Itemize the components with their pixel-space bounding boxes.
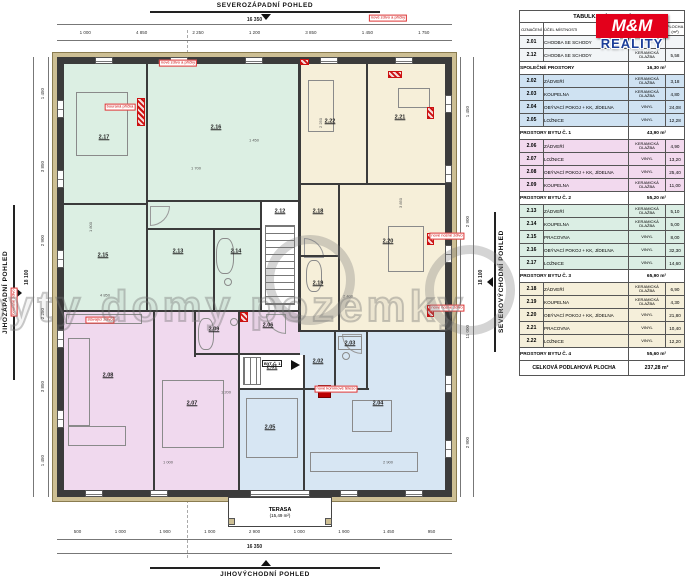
room-label: 2.16 (211, 125, 222, 131)
dimension-label: 2 400 (343, 294, 353, 299)
cell-area: 4,30 (666, 296, 685, 309)
dim-line (48, 57, 49, 497)
table-row: 2.06ZÁDVEŘÍKERAMICKÁ DLAŽBA4,90 (520, 140, 685, 153)
dimension-label: 2 900 (249, 529, 260, 537)
apartment1-entry-arrow (291, 360, 300, 370)
dimension-label: 1 450 (465, 106, 470, 117)
window-symbol (395, 57, 413, 64)
section-label: PROSTORY BYTU Č. 1 (520, 127, 629, 140)
furniture-outline (198, 318, 214, 350)
dimension-label: 2 250 (192, 30, 203, 38)
table-section-row: PROSTORY BYTU Č. 255,20 m² (520, 192, 685, 205)
dim-line (57, 553, 452, 554)
dimension-label: 1 000 (163, 460, 173, 465)
view-label-top: SEVEROZÁPADNÍ POHLED (0, 2, 530, 9)
furniture-outline (68, 426, 126, 446)
room-label: 2.22 (325, 119, 336, 125)
terrace-area: (15,49 m²) (270, 513, 291, 518)
furniture-outline (68, 338, 90, 426)
room-label: 2.02 (313, 359, 324, 365)
dimension-label: 1 450 (383, 529, 394, 537)
wall-segment (64, 203, 146, 205)
wall-segment (146, 64, 148, 312)
red-annotation: nové nosné zdivo (429, 233, 464, 240)
window-symbol (245, 57, 263, 64)
cell-area: 32,30 (666, 244, 685, 257)
cell-id: 2.14 (520, 218, 544, 231)
table-row: 2.16OBÝVACÍ POKOJ + KK, JÍDELNAVINYL32,3… (520, 244, 685, 257)
furniture-outline (310, 452, 418, 472)
dim-right-segments: 1 4502 90011 0002 900 (463, 57, 472, 497)
mm-reality-logo: M&M REALITY (593, 14, 671, 51)
dimension-label: 1 700 (191, 166, 201, 171)
dimension-label: 1 750 (418, 30, 429, 38)
furniture-outline (306, 260, 322, 292)
cell-area: 12,20 (666, 335, 685, 348)
cell-id: 2.02 (520, 75, 544, 88)
room-label: 2.21 (395, 115, 406, 121)
view-label-left: JIHOZÁPADNÍ POHLED (2, 210, 9, 375)
cell-floor: KERAMICKÁ DLAŽBA (629, 75, 666, 88)
dimension-label: 1 200 (249, 30, 260, 38)
cell-id: 2.18 (520, 283, 544, 296)
cell-area: 5,00 (666, 218, 685, 231)
view-label-right: SEVEROVÝCHODNÍ POHLED (498, 214, 505, 350)
dimension-label: 1 450 (40, 88, 45, 99)
table-row: 2.20OBÝVACÍ POKOJ + KK, JÍDELNAVINYL21,8… (520, 309, 685, 322)
cell-name: OBÝVACÍ POKOJ + KK, JÍDELNA (544, 101, 629, 114)
section-area: 16,30 m² (629, 62, 685, 75)
red-wall-mark (240, 312, 248, 322)
cell-id: 2.22 (520, 335, 544, 348)
wall-segment (334, 332, 336, 389)
room-label: 2.20 (383, 239, 394, 245)
room-label: 2.19 (313, 281, 324, 287)
cell-floor: KERAMICKÁ DLAŽBA (629, 140, 666, 153)
table-row: 2.05LOŽNICEVINYL12,28 (520, 114, 685, 127)
cell-name: LOŽNICE (544, 257, 629, 270)
view-line-right (494, 212, 496, 352)
section-label: PROSTORY BYTU Č. 4 (520, 348, 629, 361)
table-section-row: PROSTORY BYTU Č. 143,90 m² (520, 127, 685, 140)
cell-id: 2.12 (520, 49, 544, 62)
window-symbol (445, 375, 452, 393)
cell-area: 12,28 (666, 114, 685, 127)
cell-id: 2.04 (520, 101, 544, 114)
cell-area: 6,90 (666, 283, 685, 296)
dim-line (473, 57, 474, 497)
dimension-label: 2 900 (383, 460, 393, 465)
red-annotation: bouraná příčka (105, 104, 136, 111)
wall-segment (57, 310, 300, 312)
table-total-row: CELKOVÁ PODLAHOVÁ PLOCHA 237,28 m² (520, 361, 685, 376)
window-symbol (85, 490, 103, 497)
wall-segment (366, 330, 368, 390)
dimension-label: 1 900 (159, 529, 170, 537)
room-label: 2.13 (173, 249, 184, 255)
red-wall-mark (137, 98, 145, 126)
cell-name: OBÝVACÍ POKOJ + KK, JÍDELNA (544, 244, 629, 257)
pergola-post (228, 518, 235, 525)
dimension-label: 4 850 (136, 30, 147, 38)
cell-floor: KERAMICKÁ DLAŽBA (629, 296, 666, 309)
cell-floor: KERAMICKÁ DLAŽBA (629, 179, 666, 192)
dim-left-segments: 1 4503 8502 9002 2503 8501 450 (38, 57, 47, 497)
red-annotation: nové zdivo a příčky (369, 15, 407, 22)
room-table: TABULKA MÍSTNOSTÍ OZNAČENÍ ÚČEL MÍSTNOST… (519, 10, 684, 376)
table-row: 2.19KOUPELNAKERAMICKÁ DLAŽBA4,30 (520, 296, 685, 309)
wall-segment (298, 57, 301, 332)
cell-id: 2.15 (520, 231, 544, 244)
dim-left-total: 18 100 (23, 57, 32, 497)
cell-area: 21,80 (666, 309, 685, 322)
wall-segment (303, 355, 305, 490)
dimension-label: 3 850 (305, 30, 316, 38)
terrace: TERASA (15,49 m²) (228, 497, 332, 527)
cell-area: 14,60 (666, 257, 685, 270)
dim-line (33, 57, 34, 497)
view-arrow-bottom (261, 560, 271, 566)
cell-area: 11,00 (666, 179, 685, 192)
room-label: 2.15 (98, 253, 109, 259)
cell-name: ZÁDVEŘÍ (544, 205, 629, 218)
dimension-label: 4 850 (100, 293, 110, 298)
view-arrow-top (261, 14, 271, 20)
cell-floor: KERAMICKÁ DLAŽBA (629, 88, 666, 101)
dim-line (57, 24, 452, 25)
cell-name: PRACOVNA (544, 322, 629, 335)
dim-line (57, 539, 452, 540)
dimension-label: 2 250 (318, 118, 323, 128)
red-wall-mark (300, 59, 309, 65)
logo-reality-text: REALITY (593, 36, 671, 51)
dimension-label: 1 450 (249, 138, 259, 143)
window-symbol (445, 245, 452, 263)
window-symbol (445, 440, 452, 458)
wall-segment (238, 312, 240, 490)
dimension-label: 3 850 (40, 161, 45, 172)
cell-floor: VINYL (629, 257, 666, 270)
cell-name: OBÝVACÍ POKOJ + KK, JÍDELNA (544, 166, 629, 179)
room-label: 2.04 (373, 401, 384, 407)
cell-area: 25,40 (666, 166, 685, 179)
col-header-oznaceni: OZNAČENÍ (520, 23, 544, 36)
room-label: 2.18 (313, 209, 324, 215)
view-arrow-right (487, 277, 493, 287)
section-label: PROSTORY BYTU Č. 3 (520, 270, 629, 283)
toilet-symbol (224, 278, 232, 286)
dimension-label: 950 (428, 529, 436, 537)
section-area: 55,20 m² (629, 192, 685, 205)
furniture-outline (216, 238, 234, 274)
view-label-left-text: JIHOZÁPADNÍ POHLED (2, 251, 9, 334)
wall-segment (298, 330, 452, 332)
cell-area: 4,80 (666, 88, 685, 101)
cell-name: KOUPELNA (544, 88, 629, 101)
cell-id: 2.05 (520, 114, 544, 127)
cell-name: KOUPELNA (544, 179, 629, 192)
cell-floor: KERAMICKÁ DLAŽBA (629, 283, 666, 296)
cell-floor: VINYL (629, 244, 666, 257)
wall-segment (260, 200, 262, 312)
room-label: 2.17 (99, 135, 110, 141)
cell-name: OBÝVACÍ POKOJ + KK, JÍDELNA (544, 309, 629, 322)
dim-right-total: 18 100 (477, 57, 486, 497)
table-row: 2.08OBÝVACÍ POKOJ + KK, JÍDELNAVINYL25,4… (520, 166, 685, 179)
cell-floor: VINYL (629, 231, 666, 244)
room-label: 2.05 (265, 425, 276, 431)
dimension-label: 11 000 (465, 325, 470, 338)
wall-segment (338, 183, 340, 332)
table-row: 2.14KOUPELNAKERAMICKÁ DLAŽBA5,00 (520, 218, 685, 231)
cell-id: 2.03 (520, 88, 544, 101)
room-label: 2.03 (345, 341, 356, 347)
room-label: 2.07 (187, 401, 198, 407)
wall-segment (238, 388, 305, 390)
cell-name: KOUPELNA (544, 296, 629, 309)
furniture-outline (398, 88, 430, 108)
cell-floor: VINYL (629, 309, 666, 322)
dimension-label: 1 000 (204, 529, 215, 537)
window-symbol (57, 170, 64, 188)
total-value: 237,28 m² (629, 361, 685, 376)
cell-id: 2.20 (520, 309, 544, 322)
cell-id: 2.16 (520, 244, 544, 257)
table-row: 2.22LOŽNICEVINYL12,20 (520, 335, 685, 348)
wall-segment (366, 64, 368, 185)
cell-area: 3,18 (666, 75, 685, 88)
cell-area: 13,20 (666, 153, 685, 166)
cell-name: LOŽNICE (544, 335, 629, 348)
table-row: 2.18ZÁDVEŘÍKERAMICKÁ DLAŽBA6,90 (520, 283, 685, 296)
cell-id: 2.01 (520, 36, 544, 49)
cell-floor: VINYL (629, 322, 666, 335)
wall-segment (153, 312, 155, 490)
dimension-label: 1 450 (362, 30, 373, 38)
table-row: 2.03KOUPELNAKERAMICKÁ DLAŽBA4,80 (520, 88, 685, 101)
dimension-label: 1 200 (221, 390, 231, 395)
window-symbol (340, 490, 358, 497)
dimension-label: 1 900 (338, 529, 349, 537)
section-area: 65,90 m² (629, 270, 685, 283)
wall-segment (146, 228, 260, 230)
red-wall-mark (388, 71, 402, 78)
dimension-label: 1 800 (88, 222, 93, 232)
cell-id: 2.13 (520, 205, 544, 218)
furniture-outline (162, 380, 224, 448)
furniture-outline (388, 226, 424, 272)
room-label: 2.12 (275, 209, 286, 215)
table-row: 2.15PRACOVNAVINYL8,00 (520, 231, 685, 244)
toilet-symbol (230, 318, 238, 326)
cell-area: 24,08 (666, 101, 685, 114)
section-area: 55,60 m² (629, 348, 685, 361)
table-section-row: SPOLEČNÉ PROSTORY16,30 m² (520, 62, 685, 75)
dimension-label: 1 450 (40, 455, 45, 466)
cell-name: ZÁDVEŘÍ (544, 283, 629, 296)
room-label: 2.08 (103, 373, 114, 379)
cell-floor: VINYL (629, 114, 666, 127)
view-line-bottom (150, 567, 380, 569)
window-symbol (150, 490, 168, 497)
dimension-label: 2 900 (465, 216, 470, 227)
staircase (243, 357, 261, 385)
cell-id: 2.21 (520, 322, 544, 335)
window-symbol (250, 490, 310, 497)
cell-name: LOŽNICE (544, 153, 629, 166)
table-section-row: PROSTORY BYTU Č. 455,60 m² (520, 348, 685, 361)
cell-id: 2.09 (520, 179, 544, 192)
room-label: 2.01 (267, 365, 278, 371)
table-row: 2.09KOUPELNAKERAMICKÁ DLAŽBA11,00 (520, 179, 685, 192)
total-label: CELKOVÁ PODLAHOVÁ PLOCHA (520, 361, 629, 376)
cell-name: LOŽNICE (544, 114, 629, 127)
red-annotation: nové komínové těleso (315, 386, 358, 393)
cell-floor: KERAMICKÁ DLAŽBA (629, 205, 666, 218)
dimension-label: 3 850 (398, 198, 403, 208)
cell-floor: VINYL (629, 335, 666, 348)
dimension-label: 2 900 (40, 235, 45, 246)
table-row: 2.17LOŽNICEVINYL14,60 (520, 257, 685, 270)
table-row: 2.04OBÝVACÍ POKOJ + KK, JÍDELNAVINYL24,0… (520, 101, 685, 114)
table-section-row: PROSTORY BYTU Č. 365,90 m² (520, 270, 685, 283)
window-symbol (57, 250, 64, 268)
cell-id: 2.08 (520, 166, 544, 179)
window-symbol (320, 57, 338, 64)
cell-id: 2.06 (520, 140, 544, 153)
cell-floor: VINYL (629, 153, 666, 166)
dimension-label: 1 000 (115, 529, 126, 537)
staircase (265, 225, 295, 305)
dim-bottom-segments: 5001 0001 9001 0002 9001 0001 9001 45095… (57, 529, 452, 537)
table-row: 2.21PRACOVNAVINYL10,40 (520, 322, 685, 335)
window-symbol (57, 100, 64, 118)
cell-id: 2.17 (520, 257, 544, 270)
red-annotation: stávající zdivo (85, 317, 114, 324)
cell-area: 4,90 (666, 140, 685, 153)
furniture-outline (76, 92, 128, 156)
dimension-label: 2 900 (465, 437, 470, 448)
cell-id: 2.07 (520, 153, 544, 166)
room-label: 2.06 (263, 323, 274, 329)
dimension-label: 2 250 (40, 308, 45, 319)
dim-top-segments: 1 0004 8502 2501 2003 8501 4501 750 (57, 30, 452, 38)
cell-name: ZÁDVEŘÍ (544, 75, 629, 88)
wall-segment (298, 255, 340, 257)
view-line-top (150, 11, 380, 13)
cell-id: 2.19 (520, 296, 544, 309)
cell-name: PRACOVNA (544, 231, 629, 244)
room-label: 2.14 (231, 249, 242, 255)
red-annotation: nové nosné zdivo (429, 305, 464, 312)
cell-name: ZÁDVEŘÍ (544, 140, 629, 153)
section-area: 43,90 m² (629, 127, 685, 140)
view-label-top-text: SEVEROZÁPADNÍ POHLED (217, 2, 313, 9)
section-label: SPOLEČNÉ PROSTORY (520, 62, 629, 75)
cell-floor: VINYL (629, 101, 666, 114)
red-wall-mark (427, 107, 434, 119)
window-symbol (57, 330, 64, 348)
cell-name: KOUPELNA (544, 218, 629, 231)
table-row: 2.07LOŽNICEVINYL13,20 (520, 153, 685, 166)
toilet-symbol (342, 352, 350, 360)
room-label: 2.09 (209, 327, 220, 333)
red-annotation: nové zdivo a příčky (159, 60, 197, 67)
wall-segment (213, 228, 215, 312)
pergola-post (325, 518, 332, 525)
dimension-label: 3 850 (40, 381, 45, 392)
section-label: PROSTORY BYTU Č. 2 (520, 192, 629, 205)
dim-bottom-total: 16 350 (57, 544, 452, 550)
table-row: 2.13ZÁDVEŘÍKERAMICKÁ DLAŽBA5,10 (520, 205, 685, 218)
window-symbol (445, 95, 452, 113)
wall-segment (194, 353, 300, 355)
window-symbol (57, 410, 64, 428)
dim-line (460, 57, 461, 497)
cell-area: 10,40 (666, 322, 685, 335)
wall-segment (298, 183, 445, 185)
window-symbol (95, 57, 113, 64)
cell-floor: VINYL (629, 166, 666, 179)
wall-segment (194, 312, 196, 357)
floorplan-drawing: SEVEROZÁPADNÍ POHLED JIHOVÝCHODNÍ POHLED… (0, 0, 686, 583)
dimension-label: 1 000 (294, 529, 305, 537)
view-label-bottom: JIHOVÝCHODNÍ POHLED (0, 571, 530, 578)
view-label-right-text: SEVEROVÝCHODNÍ POHLED (498, 231, 505, 334)
view-label-bottom-text: JIHOVÝCHODNÍ POHLED (220, 571, 310, 578)
red-annotation: bourané zdivo (11, 287, 18, 316)
dimension-label: 500 (74, 529, 82, 537)
cell-floor: KERAMICKÁ DLAŽBA (629, 218, 666, 231)
table-row: 2.02ZÁDVEŘÍKERAMICKÁ DLAŽBA3,18 (520, 75, 685, 88)
cell-area: 5,10 (666, 205, 685, 218)
cell-area: 8,00 (666, 231, 685, 244)
logo-mm-mark: M&M (596, 14, 668, 38)
dim-line (57, 40, 452, 41)
window-symbol (445, 165, 452, 183)
wall-segment (146, 200, 300, 202)
dimension-label: 1 000 (80, 30, 91, 38)
window-symbol (405, 490, 423, 497)
